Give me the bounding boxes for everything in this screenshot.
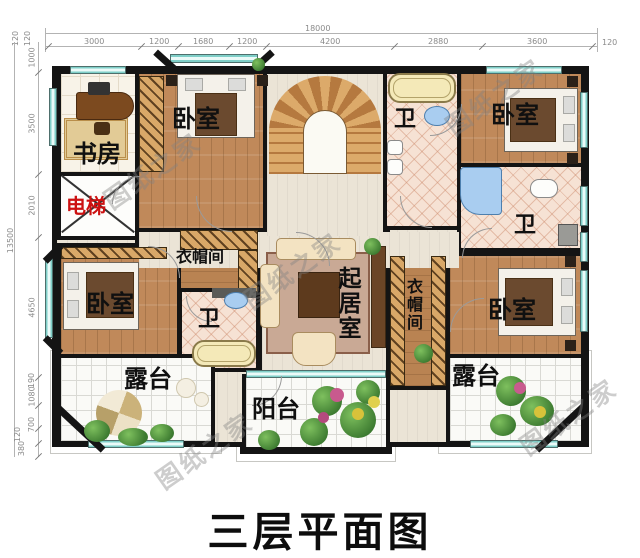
study-desk [76,92,134,120]
label-bedroom-top-right: 卧室 [491,104,539,128]
bathtub-top [388,73,456,103]
flower [330,388,344,402]
nightstand [567,76,578,87]
pillow [561,306,573,324]
bath2-right-window [580,186,588,226]
plant [414,344,433,363]
dim-wall-120-b: 120 [23,31,32,46]
flower [514,382,526,394]
dim-left-120: 120 [13,427,22,442]
label-terrace-right: 露台 [452,365,500,389]
dim-top-4200: 4200 [320,37,340,46]
floor-plan-page: 18000 120 120 3000 1200 1680 1200 4200 2… [0,0,640,558]
dim-left-1080: 1080 [28,386,37,406]
dim-total-width: 18000 [305,24,330,33]
flower [318,412,329,423]
dim-left-1000: 1000 [28,47,37,67]
label-living: 起居室 [336,266,359,341]
dim-left-4650: 4650 [28,297,37,317]
dim-wall-120-a: 120 [11,31,20,46]
dim-total-height: 13500 [6,228,15,253]
pillow [185,78,203,91]
pillow [563,96,575,114]
terrace-plant [150,424,174,442]
bedroom1-bay-window [170,54,258,63]
nightstand [565,340,576,351]
dim-left-3500: 3500 [28,113,37,133]
dim-left-2010: 2010 [28,195,37,215]
terrace-decor-circle [176,378,196,398]
pillow [67,300,79,318]
plant [252,58,265,71]
label-bedroom-bottom-left: 卧室 [86,293,134,317]
flower [352,408,364,420]
pillow [67,272,79,290]
nightstand [567,153,578,164]
label-bath-top: 卫 [394,108,416,130]
drawing-title: 三层平面图 [0,498,640,558]
nightstand [166,75,177,86]
dim-top-1680: 1680 [193,37,213,46]
dim-top-3000: 3000 [84,37,104,46]
terrace-plant [118,428,148,446]
terrace-decor-circle [194,392,209,407]
dim-top-2880: 2880 [428,37,448,46]
label-cloak-left: 衣帽间 [176,250,224,266]
label-study: 书房 [73,143,121,167]
nightstand [565,256,576,267]
label-cloak-right: 衣帽间 [404,278,420,332]
toilet-bath-right [530,179,558,198]
label-bedroom-top-left: 卧室 [172,108,220,132]
dim-top-1200: 1200 [149,37,169,46]
cabinet-bath-top [387,159,403,175]
pillow [228,78,246,91]
armchair [292,332,336,366]
top-total-dim-line [45,33,598,34]
flower [368,396,380,408]
toilet-bath-top [387,140,403,155]
top-dim-end-right [597,28,598,52]
dim-top-1200b: 1200 [237,37,257,46]
dim-tick [35,453,42,460]
shower-bath-right [460,167,502,215]
top-dim-line [45,46,598,47]
bathtub-inner [393,78,451,98]
dim-top-3600: 3600 [527,37,547,46]
cloak-right-hatch-b [431,256,446,386]
dim-top-120-right: 120 [602,38,617,47]
staircase-steps-left [269,128,305,174]
left-dim-line [38,42,39,457]
pillow [563,124,575,142]
hall-right-window [580,232,588,262]
label-terrace-left: 露台 [124,368,172,392]
plant [364,238,381,255]
staircase-arch-opening [303,110,347,174]
label-balcony: 阳台 [252,398,300,422]
bathtub-left [192,340,256,367]
pillow [561,278,573,296]
study-top-window [70,66,126,74]
washer-bath-right [558,224,578,246]
staircase-steps-right [345,128,381,174]
label-bath-right: 卫 [514,214,536,236]
terrace-plant [84,420,110,442]
study-left-window [49,88,57,146]
cloak-right-hatch-a [390,256,405,386]
cloak-left-hatch [180,230,258,250]
tv-cabinet [371,246,386,348]
study-chair [94,122,110,135]
bathtub-inner [197,345,251,362]
balcony-plant [258,430,280,450]
bedroom2-right-window [580,92,588,148]
bedroom4-right-window [580,270,588,332]
study-laptop [88,82,110,95]
dim-left-700: 700 [27,417,36,432]
label-bedroom-bottom-right: 卧室 [488,299,536,323]
nightstand [257,75,268,86]
label-elevator: 电梯 [66,197,106,217]
label-bath-left: 卫 [198,308,220,330]
dim-left-380: 380 [17,441,26,456]
bedroom3-bay-window [45,258,53,338]
